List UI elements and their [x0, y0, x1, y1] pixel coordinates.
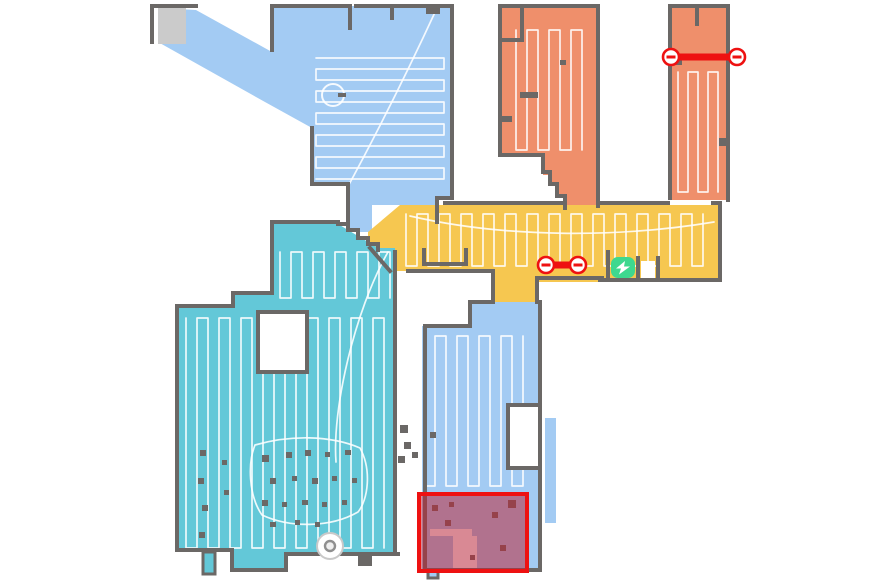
- obstacle-dot: [404, 442, 411, 449]
- obstacle-dot: [338, 93, 346, 97]
- obstacle-dot: [352, 478, 357, 483]
- obstacle-dot: [222, 460, 227, 465]
- obstacle-dot: [358, 556, 372, 566]
- obstacle-dot: [282, 502, 287, 507]
- obstacle-dot: [198, 478, 204, 484]
- obstacle-dot: [305, 450, 311, 456]
- bracket-cutout-fill: [508, 405, 540, 468]
- obstacle-dot: [262, 500, 268, 506]
- wall-segment: [286, 554, 398, 570]
- obstacle-dot: [560, 60, 566, 65]
- obstacle-dot: [342, 500, 347, 505]
- obstacle-dot: [270, 478, 276, 484]
- obstacle-dot: [200, 450, 206, 456]
- room-corridor[interactable]: [368, 205, 720, 302]
- robot-icon[interactable]: [317, 533, 343, 559]
- obstacle-dot: [400, 425, 408, 433]
- obstacle-dot: [202, 505, 208, 511]
- obstacle-dot: [430, 432, 436, 438]
- wall-block: [426, 4, 440, 14]
- obstacle-dot: [398, 456, 405, 463]
- obstacle-dot: [292, 476, 297, 481]
- robot-center-button: [325, 541, 335, 551]
- room-top-left[interactable]: [158, 6, 452, 232]
- obstacle-dot: [302, 500, 308, 505]
- obstacle-dot: [286, 452, 292, 458]
- obstacle-dot: [224, 490, 229, 495]
- obstacle-dot: [345, 450, 351, 455]
- charging-dock-icon[interactable]: [611, 257, 635, 278]
- dock-niche-cutout: [641, 261, 655, 278]
- map-canvas[interactable]: [0, 0, 872, 581]
- unexplored-area: [158, 8, 186, 44]
- obstacle-dot: [270, 522, 276, 527]
- obstacle-dot: [325, 452, 330, 457]
- obstacle-dot: [295, 520, 300, 525]
- obstacle-dot: [322, 502, 327, 507]
- room-bottom-sliver: [545, 418, 556, 523]
- obstacle-dot: [199, 532, 205, 538]
- obstacle-dot: [412, 452, 418, 458]
- obstacle-dot: [262, 455, 269, 462]
- obstacle-dot: [312, 478, 318, 484]
- island-cutout: [258, 312, 307, 372]
- obstacle-dot: [520, 92, 538, 98]
- obstacle-dot: [332, 476, 337, 481]
- no-go-zone[interactable]: [419, 494, 527, 571]
- obstacle-dot: [315, 522, 320, 527]
- map-tab: [203, 552, 215, 574]
- vacuum-map: [0, 0, 872, 581]
